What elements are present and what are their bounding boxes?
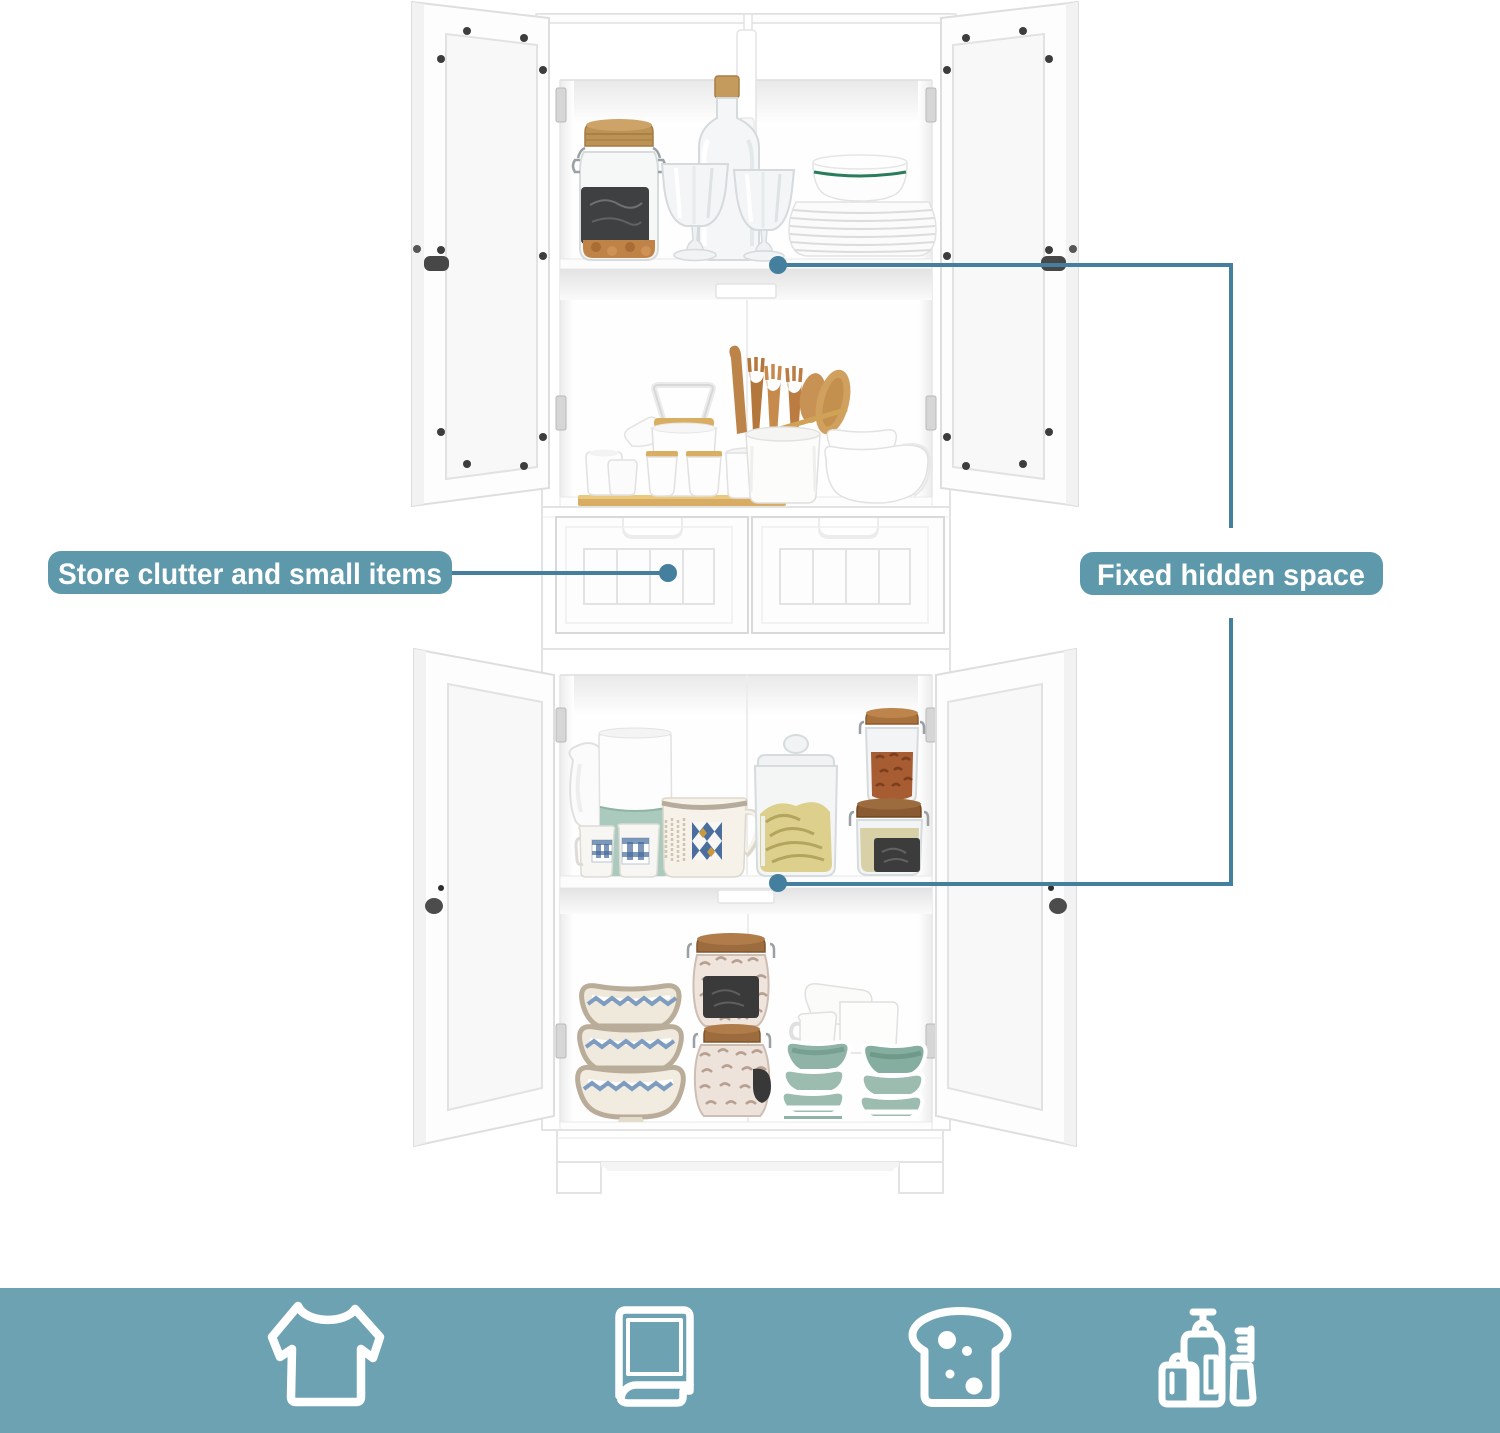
svg-text:Fixed hidden space: Fixed hidden space	[1097, 559, 1365, 592]
svg-text:Store clutter and small items: Store clutter and small items	[58, 558, 442, 591]
